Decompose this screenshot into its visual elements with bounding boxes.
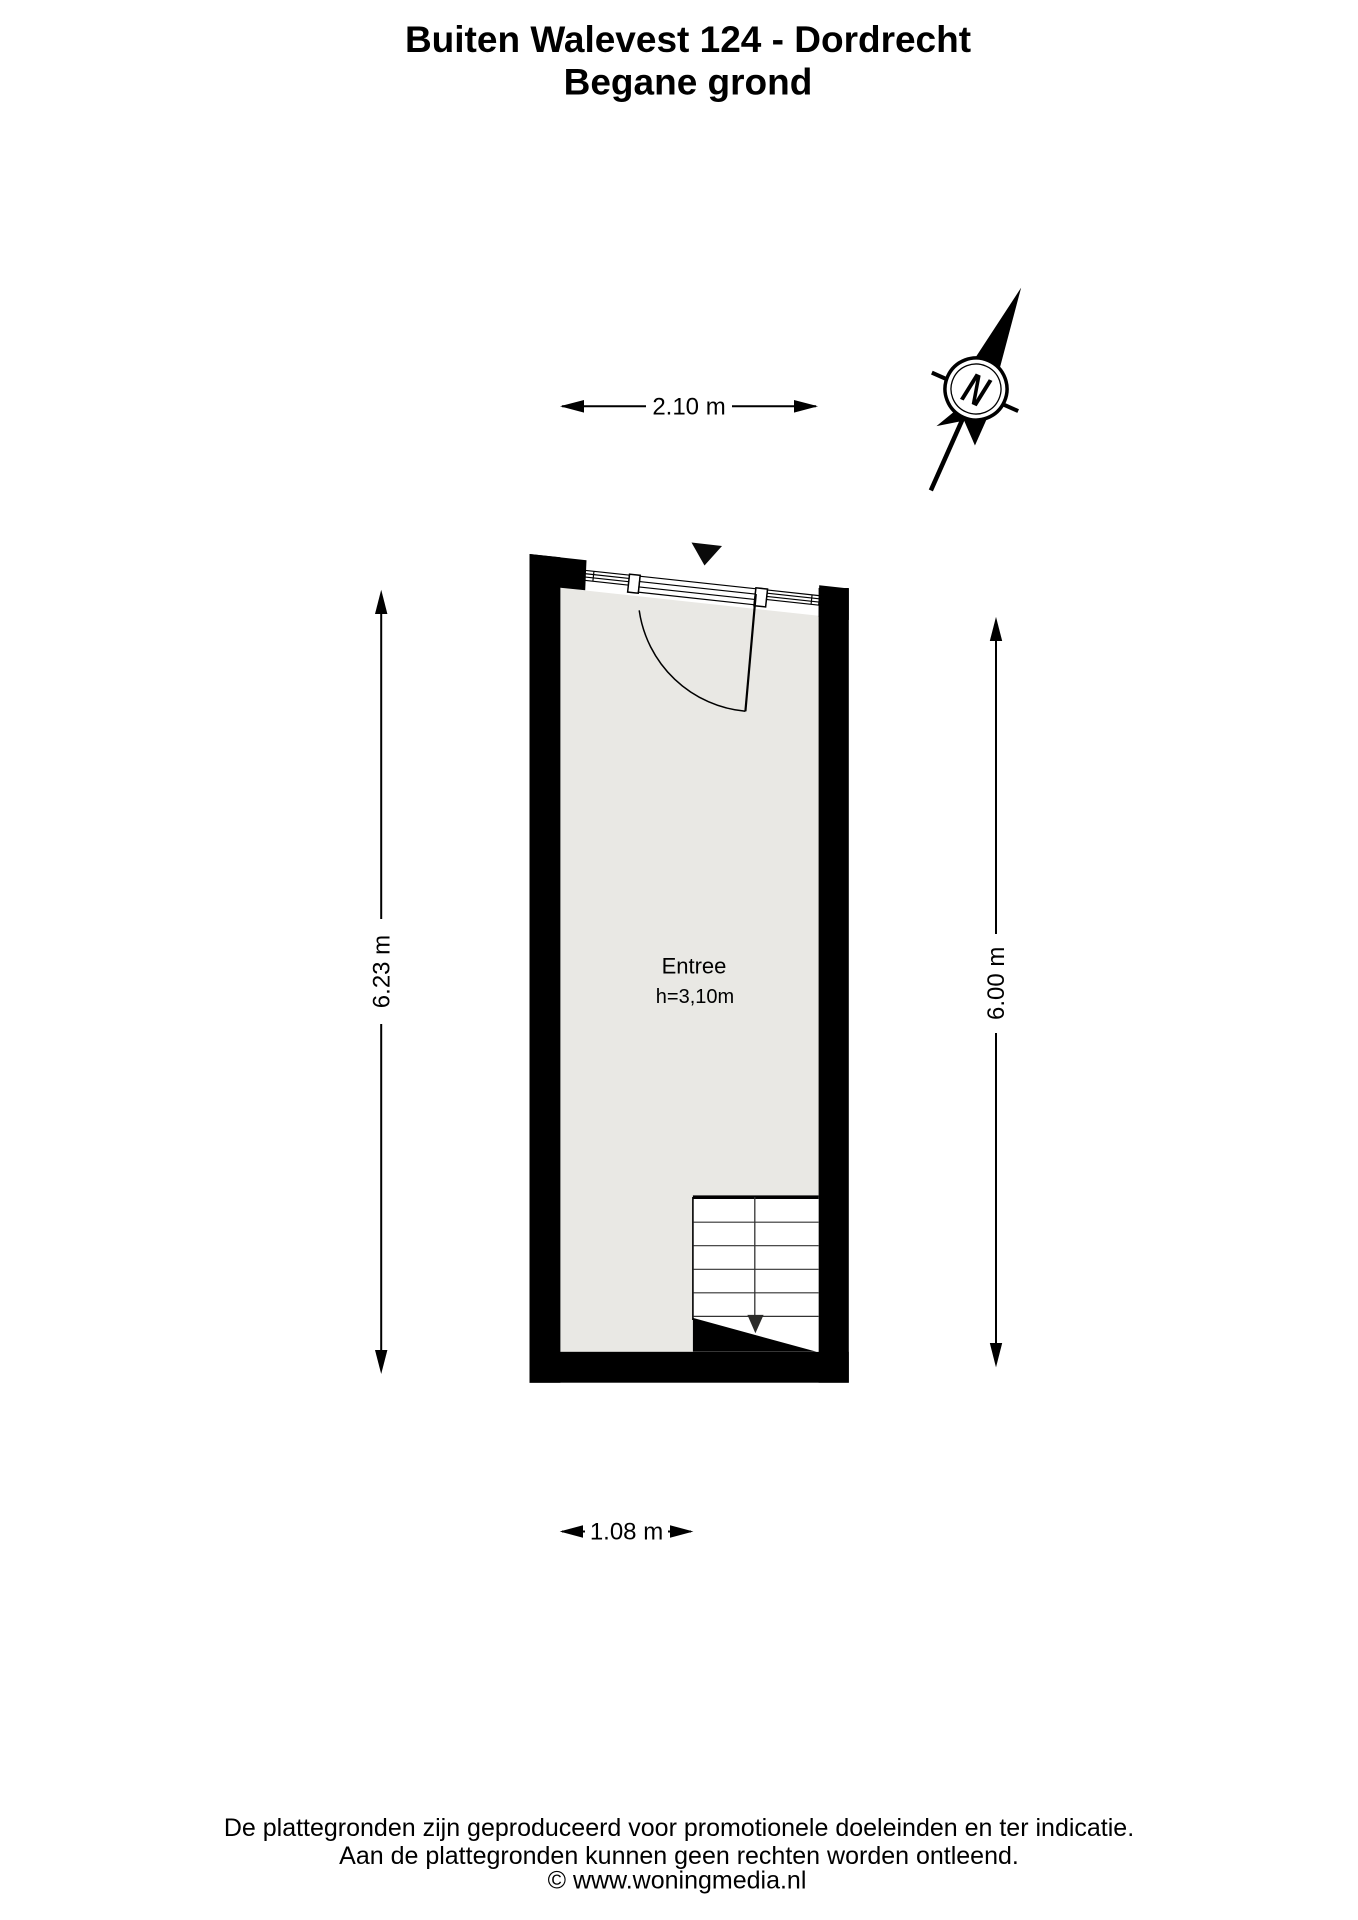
- svg-text:Buiten Walevest 124 - Dordrech: Buiten Walevest 124 - Dordrecht: [405, 19, 971, 60]
- svg-text:h=3,10m: h=3,10m: [656, 986, 734, 1008]
- svg-text:Begane grond: Begane grond: [564, 62, 813, 103]
- svg-text:© www.woningmedia.nl: © www.woningmedia.nl: [548, 1867, 807, 1895]
- svg-text:De plattegronden zijn geproduc: De plattegronden zijn geproduceerd voor …: [224, 1814, 1134, 1842]
- svg-text:2.10 m: 2.10 m: [652, 394, 725, 421]
- svg-text:Entree: Entree: [662, 954, 727, 979]
- svg-text:6.00 m: 6.00 m: [983, 947, 1010, 1020]
- svg-text:6.23 m: 6.23 m: [369, 935, 396, 1008]
- svg-text:1.08 m: 1.08 m: [590, 1519, 663, 1546]
